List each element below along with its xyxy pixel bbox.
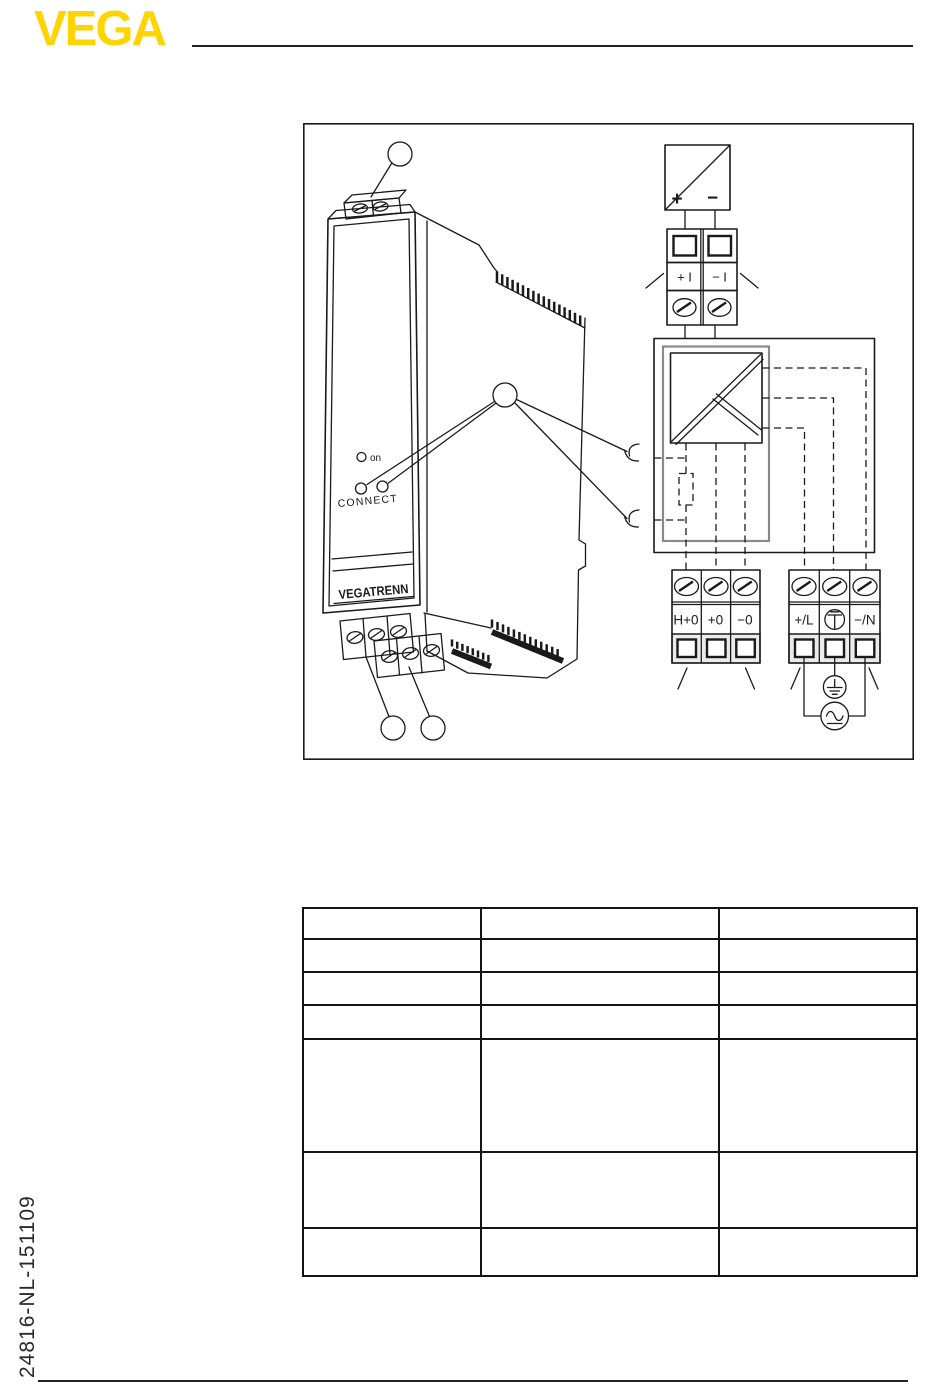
signal-minus-terminal-label: − I [712,270,727,285]
table-cell [303,972,481,1005]
protective-earth-icon [823,676,846,699]
connect-jack-right-icon [377,481,388,492]
output-terminal-2-label: +0 [708,613,723,628]
table-cell [719,1228,917,1276]
document-page: VEGA [0,0,950,1392]
footer-rule [38,1380,908,1382]
header-rule [192,45,913,47]
table-cell [481,1228,719,1276]
device-housing [415,212,586,659]
power-terminal-neutral-label: −/N [854,613,875,628]
led-on-icon [357,453,366,462]
callout-circle-1 [371,142,412,197]
document-number: 24816-NL-151109 [16,1195,40,1378]
spec-table [302,907,918,1277]
table-cell [303,908,481,939]
callout-circle-4 [409,667,445,740]
device-bottom-housing [424,613,577,678]
table-cell [481,972,719,1005]
connect-label: CONNECT [337,493,398,510]
device-bottom-terminal-blocks [340,614,445,678]
table-cell [719,939,917,972]
table-cell [719,1005,917,1039]
table-cell [481,908,719,939]
vega-logo-text: VEGA [34,2,166,54]
sensor-plus-label: + [671,189,682,210]
table-cell [303,1228,481,1276]
connect-jack-left-icon [356,483,367,494]
device-front-controls: on CONNECT [337,453,398,510]
sensor-minus-label: − [707,188,718,209]
signal-plus-terminal-label: + I [677,270,692,285]
earth-terminal-icon [825,610,845,630]
vent-serration-bottom [492,620,563,662]
table-cell [481,1005,719,1039]
device-drawing: on CONNECT VEGATRENN [323,142,627,740]
vent-serration-top [496,272,585,329]
output-terminal-1-label: H+0 [673,613,698,628]
power-terminal-line-label: +/L [794,613,814,628]
table-cell [303,1152,481,1228]
clip-hook-icon-upper [625,444,640,461]
table-cell [303,1005,481,1039]
isolator-symbol [671,353,764,445]
output-terminal-3-label: −0 [737,613,752,628]
vent-serration-bottom-2 [452,640,491,667]
device-front-panel [323,205,420,614]
callout-circle-2 [367,383,627,519]
table-cell [481,939,719,972]
supply-wiring [804,657,865,730]
table-cell [719,972,917,1005]
table-cell [303,939,481,972]
table-cell [719,1152,917,1228]
connection-figure: on CONNECT VEGATRENN [303,123,914,760]
table-cell [719,1039,917,1152]
table-cell [303,1039,481,1152]
wiring-schematic: + − + I − I [625,145,881,730]
output-terminal-block: H+0 +0 −0 [672,570,760,689]
ac-supply-icon [821,702,849,730]
signal-terminal-block: + I − I [646,229,758,325]
internal-wiring-dashed [655,368,867,570]
vega-logo: VEGA [30,2,210,54]
separator-box [625,339,875,571]
led-on-label: on [370,453,381,464]
table-cell [481,1152,719,1228]
sensor-symbol: + − [665,145,730,210]
figure-frame [304,124,913,759]
table-cell [481,1039,719,1152]
table-cell [719,908,917,939]
